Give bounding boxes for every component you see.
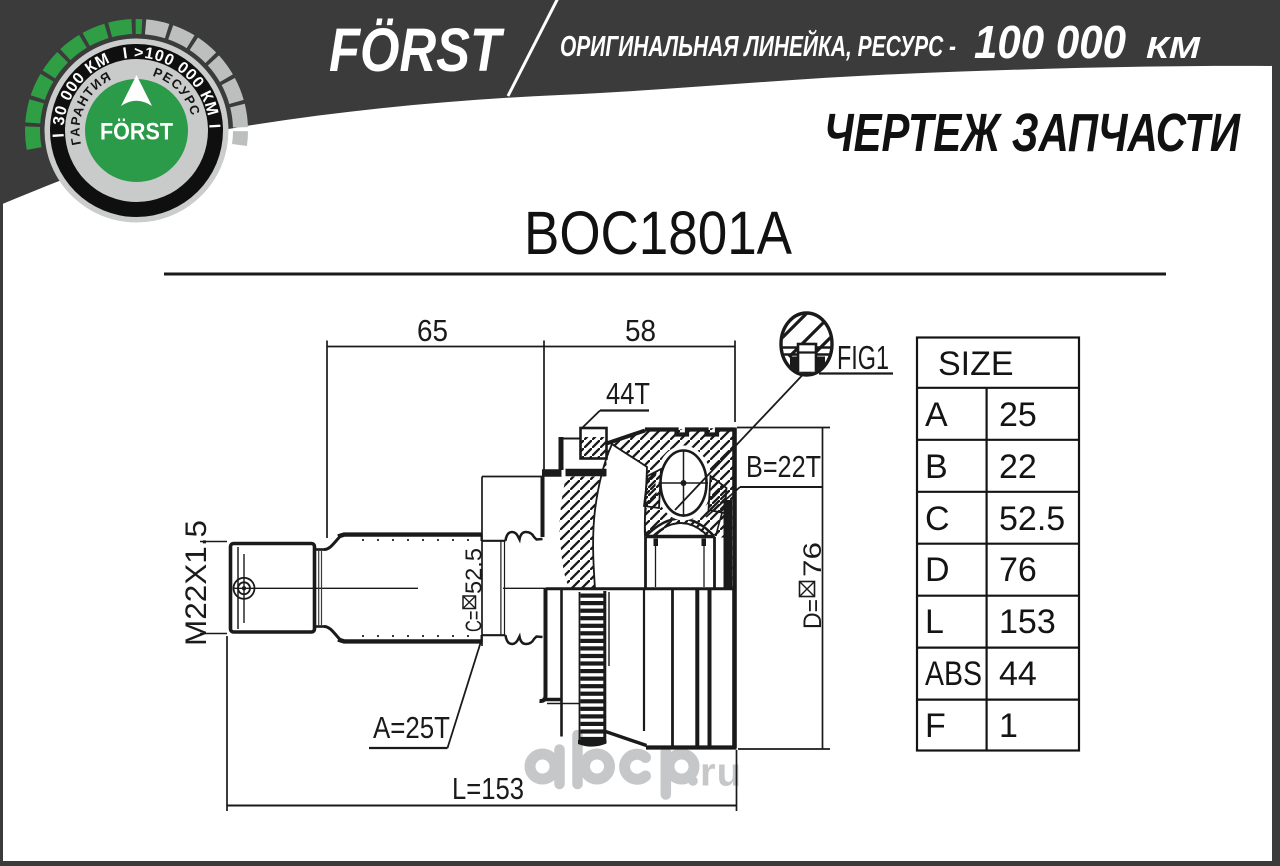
svg-text:BOC1801A: BOC1801A bbox=[524, 199, 792, 267]
svg-text:D=: D= bbox=[799, 599, 827, 629]
svg-text:44: 44 bbox=[999, 655, 1037, 693]
svg-text:C: C bbox=[925, 500, 950, 538]
svg-text:100 000: 100 000 bbox=[974, 16, 1126, 68]
svg-text:C=: C= bbox=[461, 611, 487, 633]
svg-text:D: D bbox=[925, 551, 950, 589]
svg-text:A=25T: A=25T bbox=[373, 710, 450, 745]
svg-text:SIZE: SIZE bbox=[938, 345, 1014, 383]
svg-text:153: 153 bbox=[999, 603, 1056, 641]
svg-text:L=153: L=153 bbox=[452, 771, 524, 806]
svg-text:B=22T: B=22T bbox=[746, 449, 821, 484]
svg-text:25: 25 bbox=[999, 396, 1037, 434]
svg-text:22: 22 bbox=[999, 448, 1037, 486]
svg-text:65: 65 bbox=[417, 313, 448, 348]
svg-text:I: I bbox=[50, 132, 67, 138]
svg-text:ABS: ABS bbox=[925, 655, 982, 693]
svg-text:L: L bbox=[925, 603, 944, 641]
svg-text:FÖRST: FÖRST bbox=[329, 16, 505, 84]
svg-text:B: B bbox=[925, 448, 948, 486]
svg-text:A: A bbox=[925, 396, 948, 434]
svg-text:M22X1.5: M22X1.5 bbox=[180, 520, 213, 646]
svg-text:FIG1: FIG1 bbox=[837, 339, 889, 376]
svg-text:КМ: КМ bbox=[1146, 30, 1201, 65]
svg-text:1: 1 bbox=[999, 707, 1018, 745]
svg-text:ЧЕРТЕЖ ЗАПЧАСТИ: ЧЕРТЕЖ ЗАПЧАСТИ bbox=[824, 103, 1241, 163]
svg-text:52.5: 52.5 bbox=[999, 500, 1065, 538]
svg-text:76: 76 bbox=[799, 542, 827, 577]
svg-text:FÖRST: FÖRST bbox=[100, 119, 173, 146]
svg-text:F: F bbox=[925, 707, 946, 745]
svg-text:76: 76 bbox=[999, 551, 1037, 589]
svg-text:44T: 44T bbox=[606, 376, 650, 411]
svg-text:ОРИГИНАЛЬНАЯ ЛИНЕЙКА, РЕСУРС -: ОРИГИНАЛЬНАЯ ЛИНЕЙКА, РЕСУРС - bbox=[560, 28, 956, 63]
svg-text:I: I bbox=[205, 123, 222, 129]
svg-text:52.5: 52.5 bbox=[461, 548, 487, 594]
svg-text:58: 58 bbox=[625, 313, 656, 348]
